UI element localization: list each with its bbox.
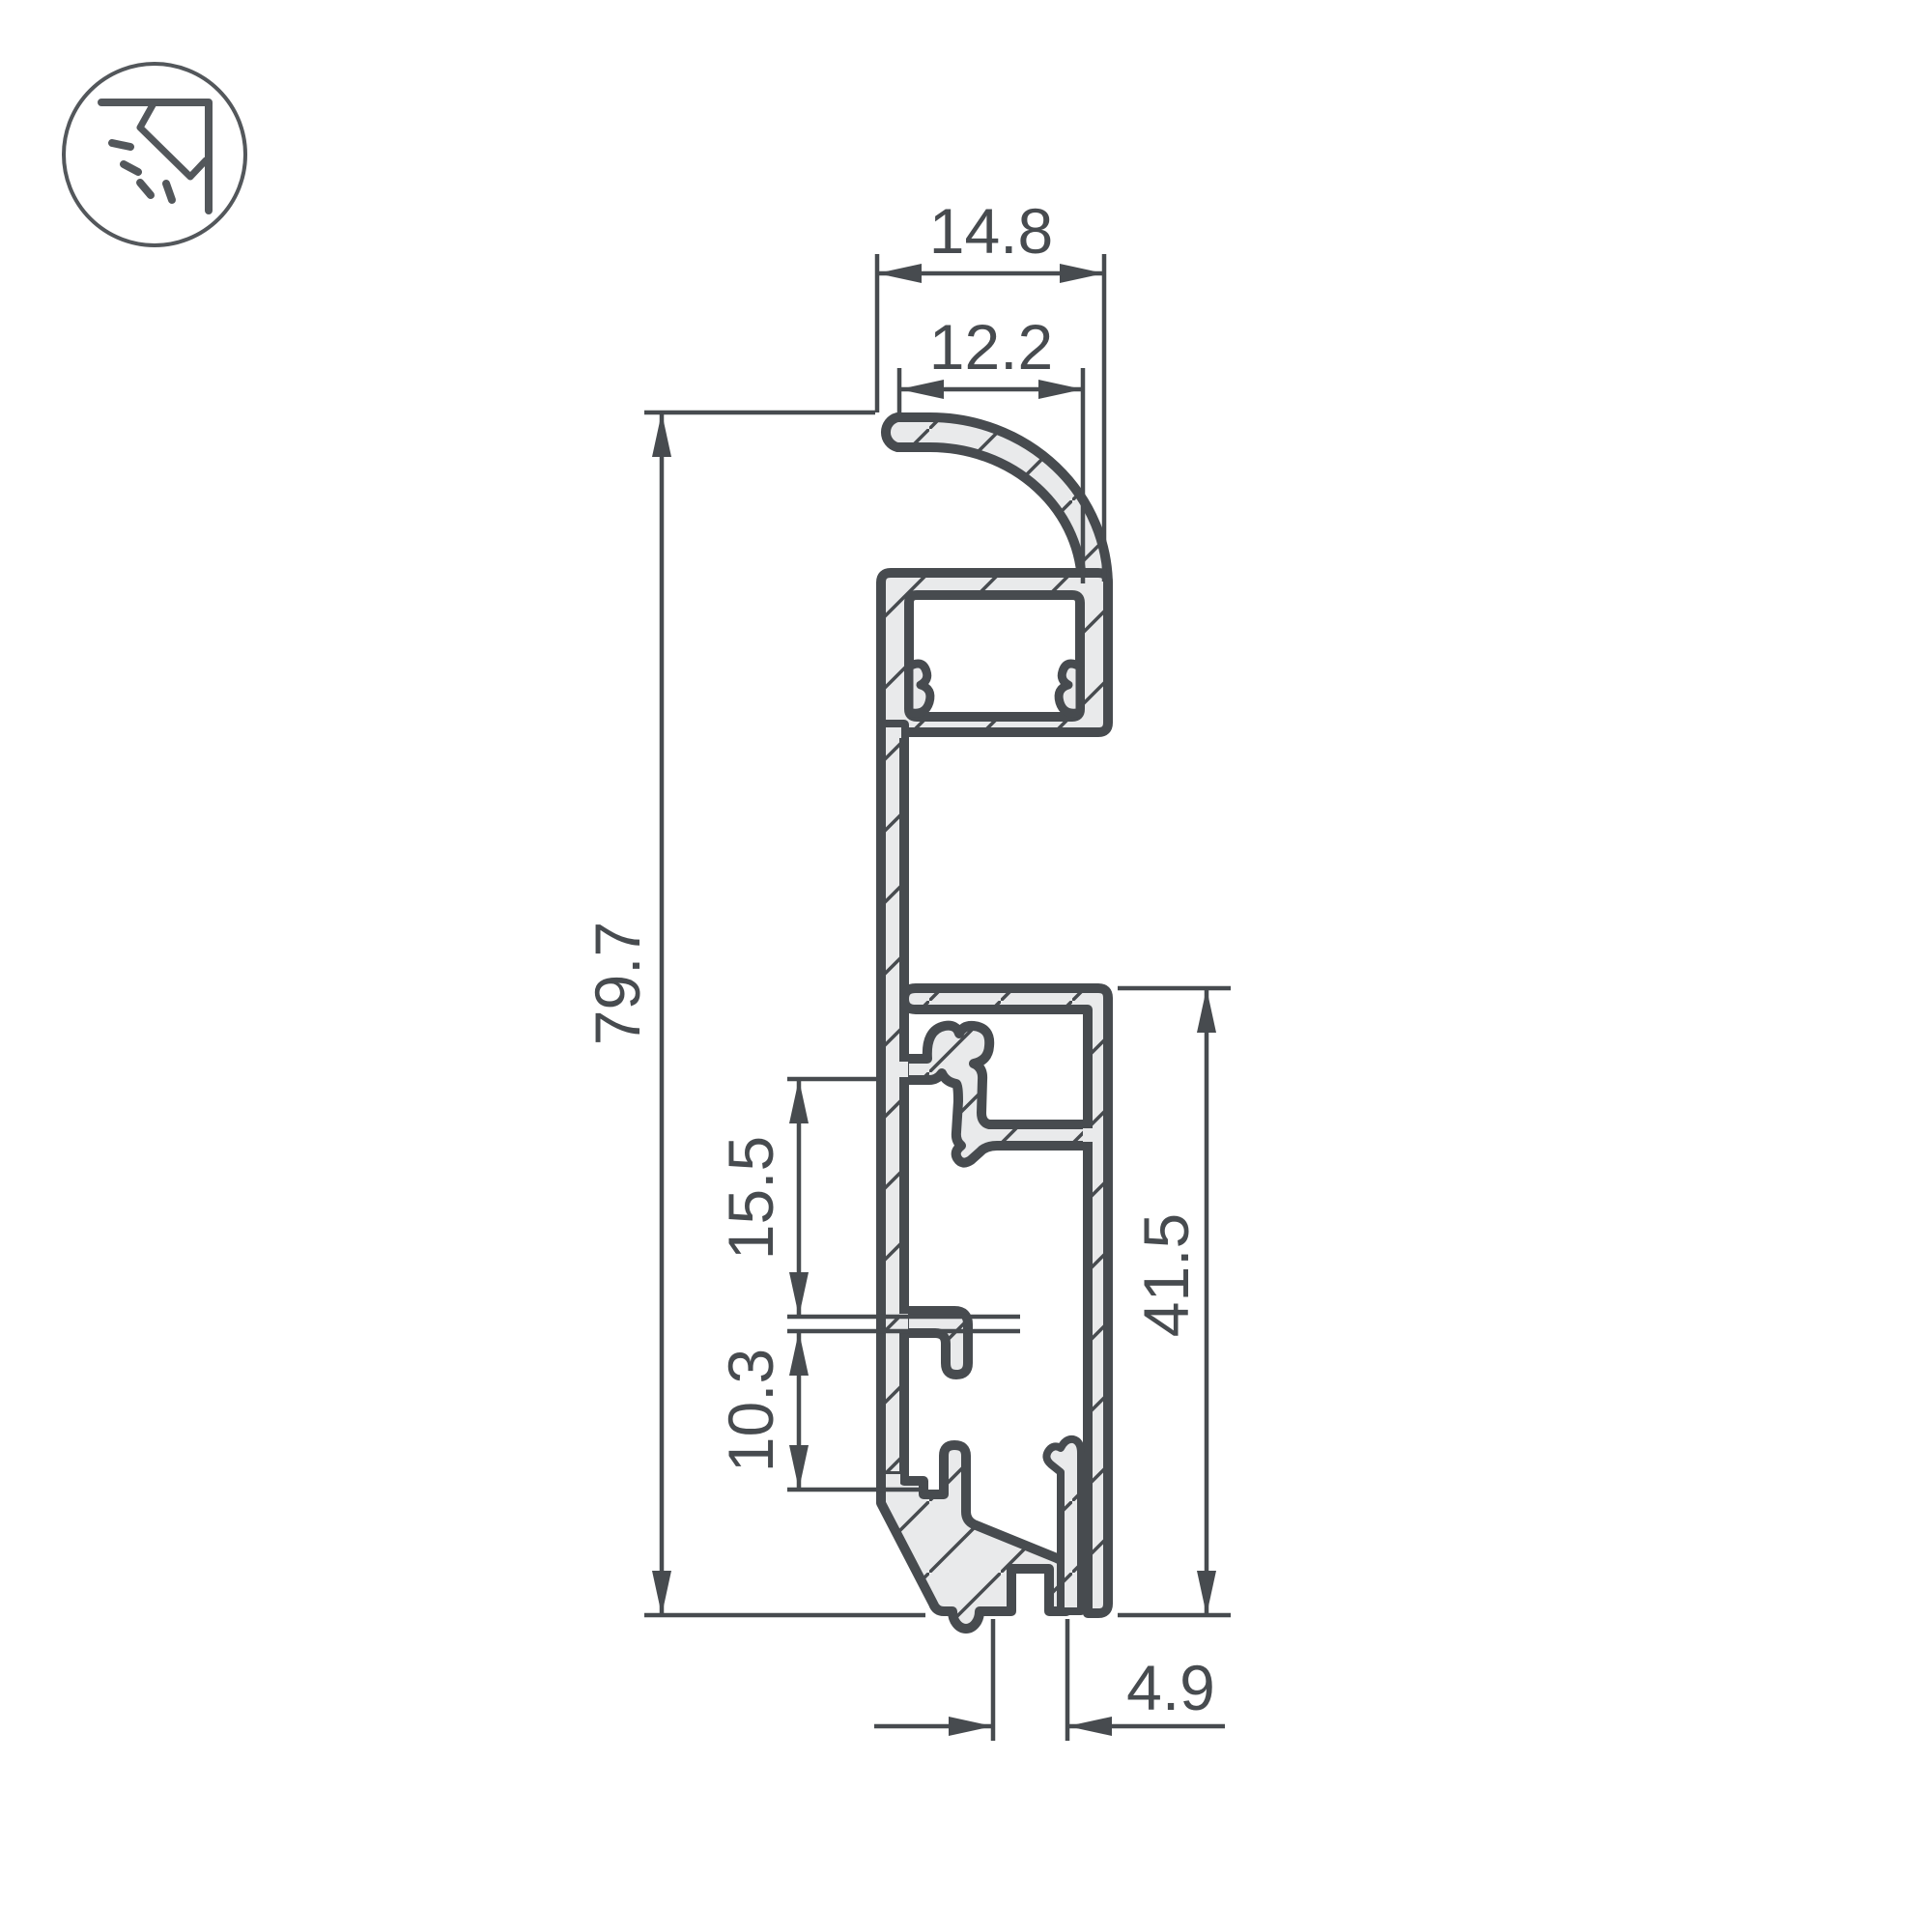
arrowhead-left: [877, 264, 922, 283]
corner-light-icon: [64, 64, 245, 245]
dimension-value: 15.5: [715, 1136, 786, 1260]
arrowhead-left: [949, 1717, 993, 1736]
led-profile-cross-section-drawing: 14.8 12.2 79.7 15.5: [0, 0, 1932, 1932]
junction-seams: [886, 727, 1093, 1486]
profile-mounting-bracket: [904, 1026, 1088, 1163]
arrowhead-top: [1197, 988, 1216, 1033]
profile-led-channel-cavity: [909, 595, 1080, 717]
profile-cross-section: [881, 417, 1108, 1629]
dimension-value: 41.5: [1130, 1213, 1202, 1337]
dimension-value: 4.9: [1126, 1652, 1215, 1723]
profile-diffuser-clip-right: [1059, 664, 1080, 713]
dimension-value: 14.8: [929, 195, 1053, 267]
arrowhead-bottom: [789, 1272, 809, 1317]
arrowhead-right: [1060, 264, 1104, 283]
arrowhead-top: [789, 1331, 809, 1376]
extension-lines: [993, 1619, 1067, 1741]
dimension-mid-lower-gap: 10.3: [715, 1331, 1020, 1490]
arrowhead-bottom: [652, 1571, 671, 1615]
arrowhead-top: [652, 412, 671, 457]
dimension-value: 12.2: [929, 311, 1053, 383]
icon-circle-border: [64, 64, 245, 245]
arrowhead-left: [899, 380, 944, 399]
dimension-value: 10.3: [715, 1349, 786, 1472]
arrowhead-right: [1038, 380, 1083, 399]
arrowhead-bottom: [1197, 1571, 1216, 1615]
technical-drawing-page: 14.8 12.2 79.7 15.5: [0, 0, 1932, 1932]
profile-curved-blade: [886, 417, 1108, 593]
profile-snap-hook: [904, 1311, 968, 1375]
dimension-lower-box-height: 41.5: [1118, 988, 1231, 1615]
arrowhead-bottom: [789, 1445, 809, 1490]
dimension-value: 79.7: [582, 922, 653, 1045]
profile-diffuser-clip-left: [909, 664, 930, 713]
icon-ceiling-corner: [101, 102, 209, 211]
arrowhead-right: [1067, 1717, 1112, 1736]
arrowhead-top: [789, 1079, 809, 1123]
profile-vertical-wall: [881, 724, 904, 1482]
dimension-bottom-slot: 4.9: [874, 1619, 1225, 1741]
icon-lamp-body: [140, 103, 209, 177]
